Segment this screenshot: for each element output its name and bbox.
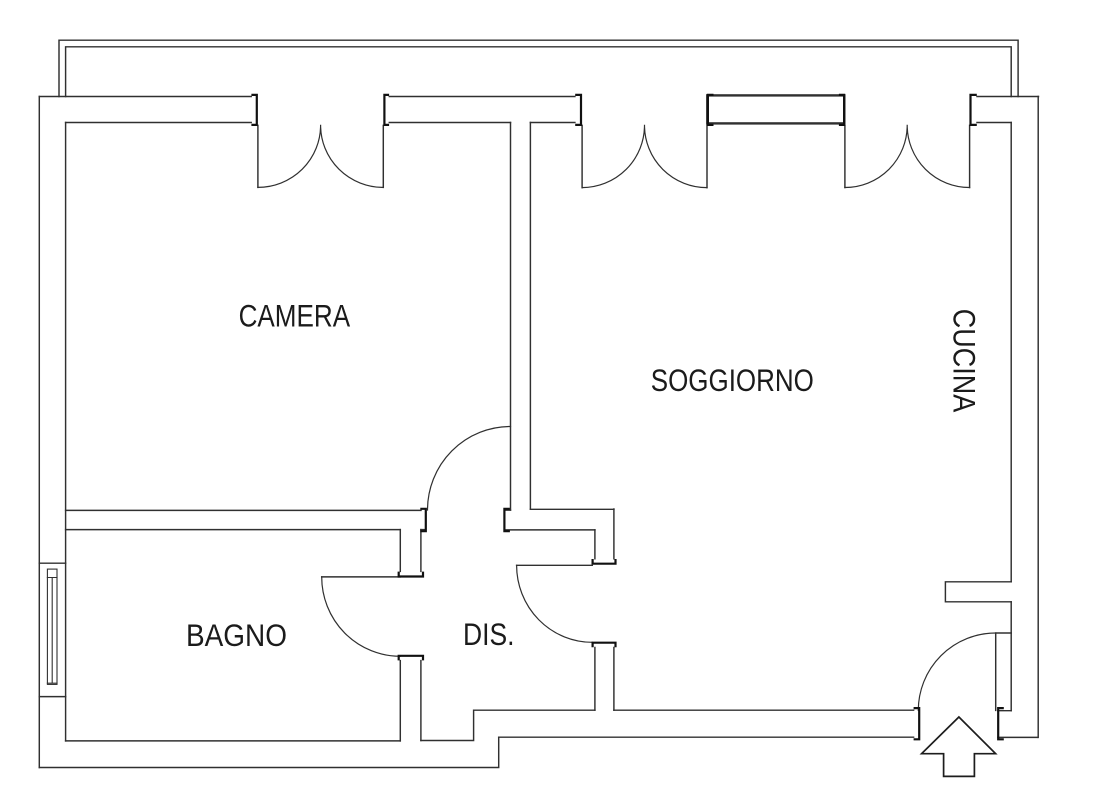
svg-text:CAMERA: CAMERA (239, 298, 351, 333)
svg-text:SOGGIORNO: SOGGIORNO (651, 363, 814, 398)
svg-text:DIS.: DIS. (463, 617, 515, 652)
svg-text:BAGNO: BAGNO (186, 618, 287, 653)
svg-text:CUCINA: CUCINA (946, 309, 981, 413)
